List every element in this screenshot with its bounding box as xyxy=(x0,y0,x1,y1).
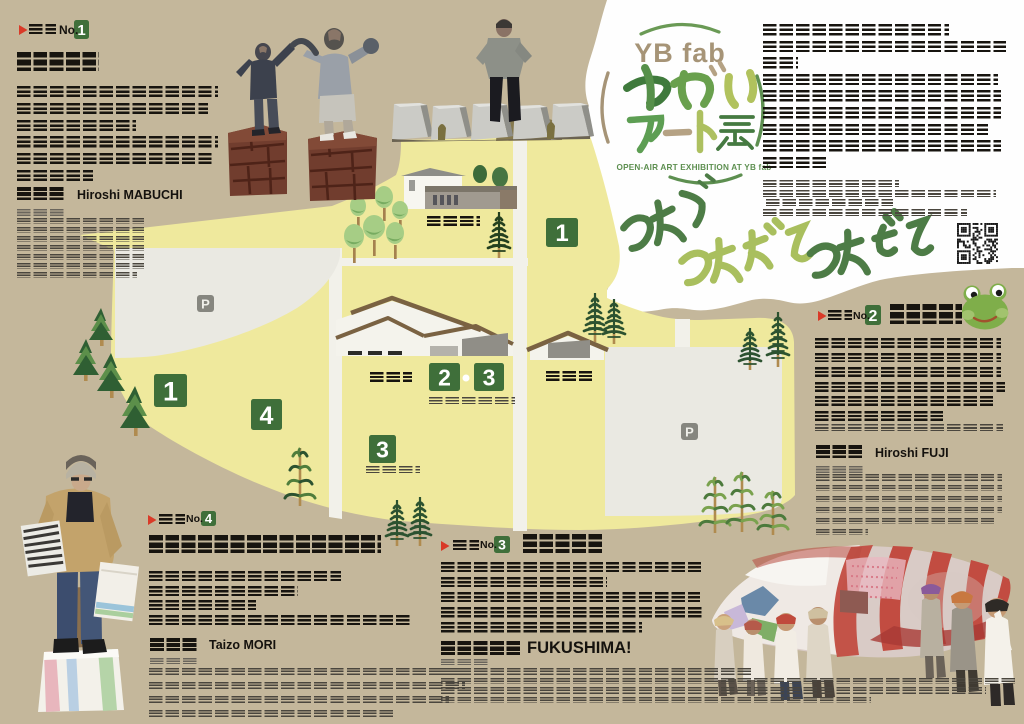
svg-text:1: 1 xyxy=(555,220,568,247)
svg-text:YB fab: YB fab xyxy=(634,38,726,68)
svg-text:2: 2 xyxy=(438,364,451,390)
svg-text:OPEN-AIR ART EXHIBITION AT YB: OPEN-AIR ART EXHIBITION AT YB fab xyxy=(617,163,772,172)
svg-text:1: 1 xyxy=(163,376,178,406)
svg-text:4: 4 xyxy=(205,511,213,526)
svg-text:3: 3 xyxy=(376,436,389,462)
svg-text:3: 3 xyxy=(498,537,506,553)
svg-text:P: P xyxy=(685,425,694,440)
svg-text:P: P xyxy=(201,297,210,312)
svg-text:3: 3 xyxy=(483,364,496,390)
svg-text:1: 1 xyxy=(77,22,85,39)
svg-text:4: 4 xyxy=(260,402,274,430)
